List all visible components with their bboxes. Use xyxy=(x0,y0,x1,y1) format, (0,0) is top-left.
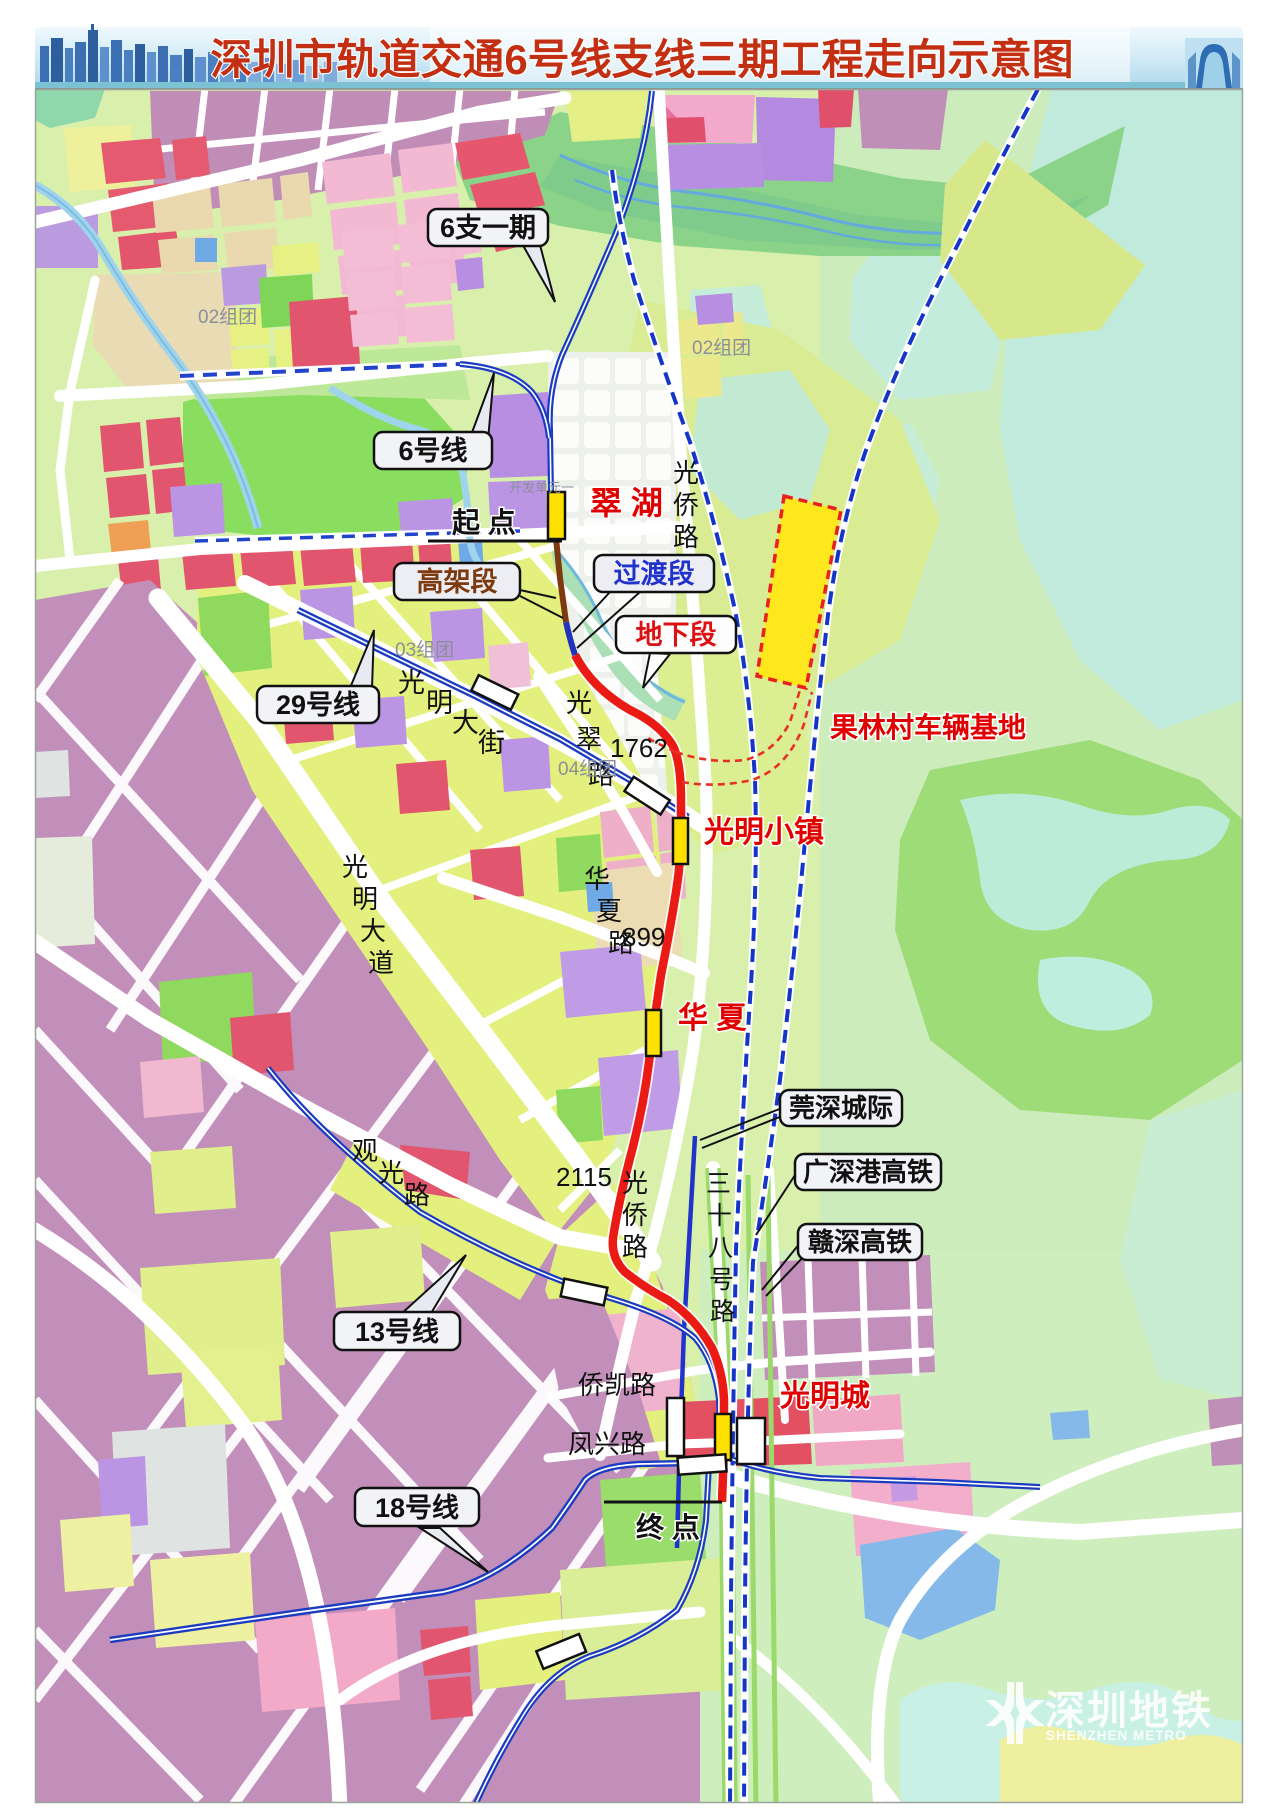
svg-text:果林村车辆基地: 果林村车辆基地 xyxy=(830,711,1026,743)
svg-text:三: 三 xyxy=(706,1170,731,1198)
svg-text:路: 路 xyxy=(673,522,699,552)
svg-text:地下段: 地下段 xyxy=(636,620,717,650)
svg-text:起 点: 起 点 xyxy=(452,507,516,538)
svg-text:凤兴路: 凤兴路 xyxy=(568,1429,646,1459)
svg-text:观: 观 xyxy=(352,1136,378,1166)
svg-text:路: 路 xyxy=(710,1298,735,1326)
svg-text:光明小镇: 光明小镇 xyxy=(704,816,824,849)
svg-text:路: 路 xyxy=(404,1180,430,1210)
svg-text:终 点: 终 点 xyxy=(636,1512,700,1543)
svg-text:赣深高铁: 赣深高铁 xyxy=(808,1227,912,1257)
svg-text:29号线: 29号线 xyxy=(276,690,360,720)
svg-text:03组团: 03组团 xyxy=(395,639,454,661)
svg-text:18号线: 18号线 xyxy=(375,1493,459,1523)
svg-text:路: 路 xyxy=(622,1232,648,1262)
svg-text:翠 湖: 翠 湖 xyxy=(590,485,663,521)
svg-text:莞深城际: 莞深城际 xyxy=(789,1093,893,1123)
svg-text:深圳地铁: 深圳地铁 xyxy=(1045,1689,1213,1733)
svg-text:深圳市轨道交通6号线支线三期工程走向示意图: 深圳市轨道交通6号线支线三期工程走向示意图 xyxy=(210,36,1073,83)
svg-text:光明城: 光明城 xyxy=(780,1380,870,1413)
svg-text:号: 号 xyxy=(709,1266,734,1294)
svg-text:翠: 翠 xyxy=(576,724,602,754)
svg-text:侨凯路: 侨凯路 xyxy=(578,1370,656,1400)
svg-text:光: 光 xyxy=(398,668,425,698)
svg-text:明: 明 xyxy=(426,688,453,718)
svg-text:华: 华 xyxy=(584,864,610,894)
svg-text:八: 八 xyxy=(708,1234,733,1262)
svg-text:开发单元一: 开发单元一 xyxy=(509,480,574,495)
svg-text:光: 光 xyxy=(378,1158,404,1188)
svg-text:13号线: 13号线 xyxy=(355,1317,439,1347)
svg-text:6号线: 6号线 xyxy=(398,436,467,466)
svg-text:2115: 2115 xyxy=(556,1162,612,1192)
svg-text:道: 道 xyxy=(368,948,394,978)
svg-text:侨: 侨 xyxy=(673,490,699,520)
svg-text:侨: 侨 xyxy=(622,1200,648,1230)
svg-text:899: 899 xyxy=(622,922,665,952)
svg-text:华 夏: 华 夏 xyxy=(678,1002,747,1035)
svg-text:高架段: 高架段 xyxy=(417,566,498,597)
svg-text:明: 明 xyxy=(352,884,378,914)
svg-text:光: 光 xyxy=(622,1168,648,1198)
svg-text:广深港高铁: 广深港高铁 xyxy=(803,1157,933,1187)
svg-text:SHENZHEN METRO: SHENZHEN METRO xyxy=(1046,1728,1187,1743)
svg-text:02组团: 02组团 xyxy=(198,306,257,328)
svg-text:大: 大 xyxy=(360,916,386,946)
svg-text:过渡段: 过渡段 xyxy=(614,558,695,589)
svg-text:十: 十 xyxy=(707,1202,732,1230)
svg-text:04组团: 04组团 xyxy=(558,758,617,780)
svg-text:6支一期: 6支一期 xyxy=(440,213,536,243)
svg-text:大: 大 xyxy=(452,708,479,738)
svg-text:街: 街 xyxy=(478,728,505,758)
svg-text:光: 光 xyxy=(342,852,368,882)
svg-text:光: 光 xyxy=(673,458,699,488)
svg-text:02组团: 02组团 xyxy=(692,337,751,359)
svg-text:夏: 夏 xyxy=(596,896,622,926)
svg-text:光: 光 xyxy=(566,688,592,718)
svg-text:1762: 1762 xyxy=(610,733,668,763)
